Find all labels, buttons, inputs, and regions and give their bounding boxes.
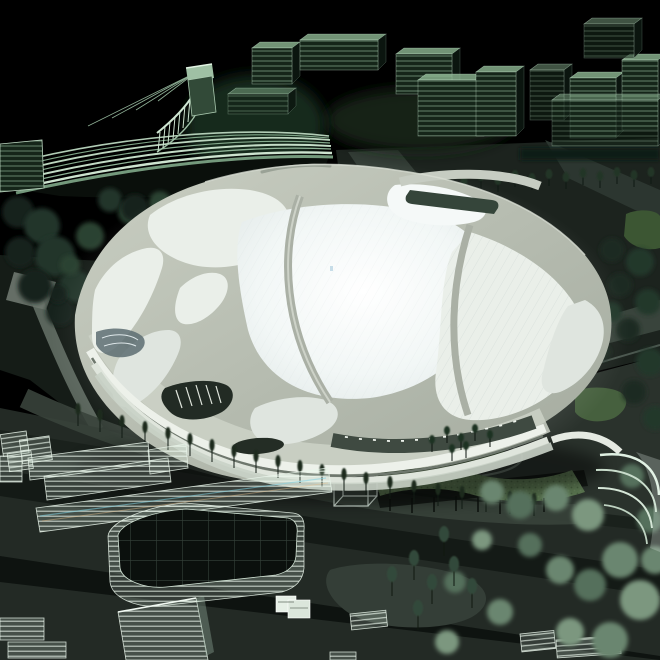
- sage-tree: [574, 569, 606, 601]
- roof-marker: [330, 266, 333, 271]
- median-tree: [467, 578, 477, 594]
- sage-tree: [546, 556, 574, 584]
- street-tree: [209, 439, 214, 451]
- glass-building: [516, 66, 524, 136]
- facade-window: [401, 440, 404, 442]
- median-tree: [427, 574, 437, 590]
- street-tree: [435, 483, 440, 495]
- street-tree: [142, 421, 147, 433]
- right-edge-tree: [622, 380, 646, 404]
- sage-tree: [480, 480, 504, 504]
- street-tree: [231, 445, 236, 457]
- sage-tree: [435, 630, 459, 654]
- stand-tower: [188, 76, 216, 116]
- street-tree: [459, 486, 464, 498]
- sage-tree: [556, 618, 584, 646]
- facade-window: [443, 436, 446, 438]
- acrylic-slab-right-1: [520, 630, 556, 651]
- facade-window: [415, 439, 418, 441]
- park-tree-canopy: [5, 237, 35, 267]
- facade-window: [359, 438, 362, 440]
- park-tree-canopy: [98, 188, 122, 212]
- sage-tree: [592, 622, 628, 658]
- median-tree: [387, 566, 397, 582]
- city-row-tree: [580, 168, 587, 178]
- sage-tree: [572, 499, 604, 531]
- glass-block-roof-grid: [118, 509, 297, 587]
- street-tree: [253, 450, 258, 462]
- city-row-tree: [648, 167, 655, 177]
- glass-building: [396, 48, 460, 54]
- acrylic-slab-mid: [350, 610, 387, 630]
- street-tree: [165, 427, 170, 439]
- model-photo-canvas: [0, 0, 660, 660]
- stand-end-block: [0, 140, 44, 192]
- median-tree: [409, 550, 419, 566]
- sage-tree: [602, 542, 638, 578]
- glass-building: [552, 94, 660, 100]
- street-tree: [341, 468, 346, 480]
- mound-tree: [463, 441, 469, 450]
- mound-tree: [472, 424, 478, 433]
- right-edge-tree: [626, 248, 654, 276]
- glass-building: [570, 72, 624, 78]
- city-reflection: [520, 148, 660, 160]
- glass-building: [552, 100, 658, 146]
- acrylic-small-stack: [0, 456, 22, 482]
- mound-tree: [444, 426, 450, 435]
- sage-tree: [620, 580, 660, 620]
- facade-window: [373, 439, 376, 441]
- sage-tree: [543, 485, 569, 511]
- street-tree: [297, 460, 302, 472]
- city-row-tree: [563, 172, 570, 182]
- sage-tree: [506, 491, 534, 519]
- street-tree: [75, 403, 80, 415]
- street-tree: [411, 480, 416, 492]
- facade-window: [345, 436, 348, 438]
- street-tree: [97, 409, 102, 421]
- sage-tree: [487, 599, 513, 625]
- mound-tree: [449, 444, 455, 453]
- park-tree-canopy: [18, 269, 52, 303]
- street-tree: [119, 415, 124, 427]
- glass-building: [228, 88, 296, 94]
- mound-tree: [487, 430, 493, 439]
- right-edge-tree: [635, 289, 660, 315]
- glass-building: [300, 40, 378, 70]
- glass-building: [584, 18, 642, 24]
- mound-tree: [458, 433, 464, 442]
- street-tree: [275, 455, 280, 467]
- glass-building: [300, 34, 386, 40]
- city-row-tree: [597, 171, 604, 181]
- median-tree: [449, 556, 459, 572]
- street-tree: [363, 472, 368, 484]
- glass-building: [228, 94, 288, 114]
- street-tree: [187, 433, 192, 445]
- city-row-tree: [546, 169, 553, 179]
- mound-tree: [429, 435, 435, 444]
- acrylic-slab-tiny: [330, 652, 356, 660]
- glass-building: [418, 80, 484, 136]
- city-row-tree: [614, 167, 621, 177]
- acrylic-corner-1: [0, 618, 44, 640]
- street-tree: [387, 476, 392, 488]
- median-tree: [439, 526, 449, 542]
- glass-building: [584, 24, 634, 58]
- sage-tree: [518, 533, 542, 557]
- right-edge-tree: [600, 238, 624, 262]
- glass-building: [252, 48, 292, 84]
- glass-building: [476, 72, 516, 136]
- city-row-tree: [631, 170, 638, 180]
- acrylic-corner-2: [8, 642, 66, 658]
- median-tree: [413, 600, 423, 616]
- sage-tree: [444, 571, 466, 593]
- sage-tree: [472, 530, 492, 550]
- facade-window: [387, 440, 390, 442]
